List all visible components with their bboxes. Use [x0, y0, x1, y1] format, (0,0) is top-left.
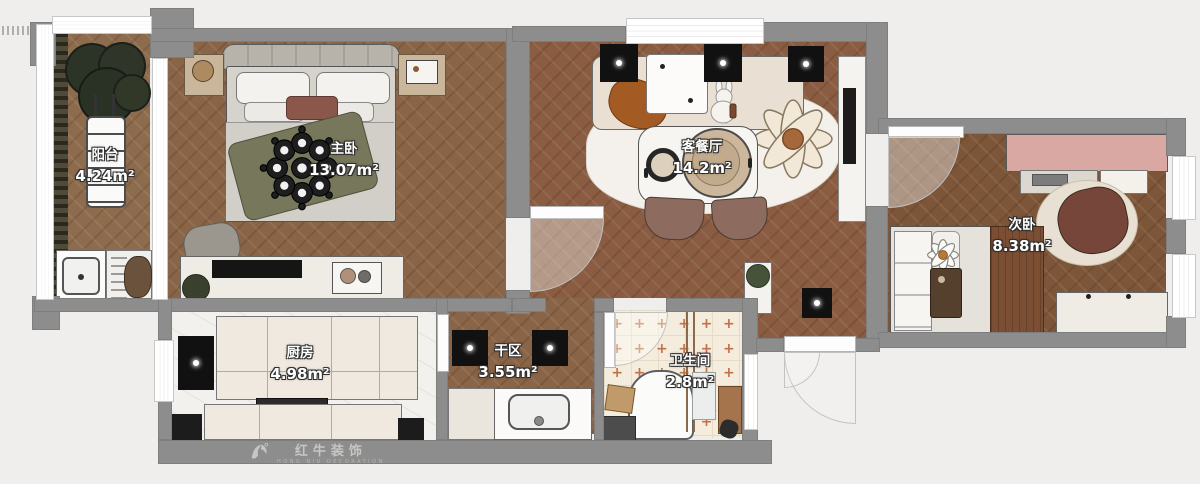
kitchen-window	[154, 340, 174, 402]
sink-faucet	[78, 274, 84, 280]
balcony-top-window	[52, 16, 152, 34]
wall-wing-bottom	[878, 332, 1186, 348]
ceiling-light	[704, 44, 742, 82]
entry-door	[784, 336, 856, 352]
second-bedroom-window	[1172, 156, 1196, 220]
wall-hall-bottom-left	[756, 338, 784, 352]
wall-top-living-right	[762, 22, 874, 42]
room-label-master-bedroom: 主卧 13.07m²	[296, 140, 392, 181]
room-area: 4.98m²	[242, 364, 358, 386]
cooktop	[178, 336, 214, 390]
wall-top-master	[150, 28, 512, 42]
room-label-dry-zone: 干区 3.55m²	[458, 342, 558, 383]
room-label-kitchen: 厨房 4.98m²	[242, 344, 358, 385]
balcony-sliding-door	[152, 58, 168, 300]
bath-cabinet	[600, 416, 636, 442]
wall-mid-stub	[512, 298, 546, 312]
room-area: 3.55m²	[458, 362, 558, 384]
entry-plant	[746, 264, 770, 288]
second-bedroom-window	[1172, 254, 1196, 318]
bathroom-window	[744, 354, 758, 430]
ceiling-light	[788, 46, 824, 82]
room-label-bathroom: 卫生间 2.8m²	[638, 352, 742, 393]
living-top-window	[626, 18, 764, 44]
decor-plate	[340, 268, 356, 284]
wall-hall-bottom-right	[854, 338, 880, 352]
wall-top-living-left	[512, 26, 626, 42]
nightstand-tray	[406, 60, 438, 84]
kitchen-sliding-door	[437, 314, 449, 372]
second-bedroom-cabinet	[1056, 292, 1168, 334]
flower-pillow	[926, 238, 960, 272]
floor-plan: ++++++++++++++++++++++++++++++	[0, 0, 1200, 484]
wall-bath-top-left	[594, 298, 614, 312]
decor-plate	[358, 270, 371, 283]
wall-kitchen-left-b	[158, 400, 172, 440]
side-table-item	[660, 64, 665, 69]
room-name: 干区	[458, 342, 558, 362]
room-name: 厨房	[242, 344, 358, 364]
room-name: 主卧	[296, 140, 392, 160]
room-area: 4.24m²	[60, 166, 150, 188]
kitchen-corner-unit	[398, 418, 424, 440]
wall-kitchen-left-a	[158, 298, 172, 340]
kitchen-base-cabinets	[204, 404, 402, 440]
site-annotation-scribble	[2, 26, 30, 35]
dry-zone-cabinet	[448, 388, 496, 440]
wall-living-wing-lower	[866, 206, 888, 346]
tv-screen	[212, 260, 302, 278]
room-area: 8.38m²	[972, 236, 1072, 258]
sink-faucet	[534, 416, 544, 426]
sofa-side-table	[646, 54, 708, 114]
bath-stool	[604, 384, 635, 414]
wall-master-living-upper	[506, 28, 530, 218]
brand-watermark: 红牛装饰 HONG NIU DECORATION	[248, 438, 385, 466]
balcony-rail-window	[36, 24, 54, 300]
room-name: 客餐厅	[652, 138, 752, 158]
room-area: 2.8m²	[638, 372, 742, 394]
desk	[1006, 134, 1168, 172]
cabinet-handle	[1126, 294, 1131, 299]
table-lamp	[192, 60, 214, 82]
balcony-plant-pot	[124, 256, 152, 298]
room-label-second-bedroom: 次卧 8.38m²	[972, 216, 1072, 257]
tray-item	[413, 66, 419, 72]
wall-wing-right-a	[1166, 118, 1186, 156]
ceiling-light	[600, 44, 638, 82]
room-label-balcony: 阳台 4.24m²	[60, 146, 150, 187]
tv-screen-living	[843, 88, 856, 164]
side-table-item	[688, 98, 693, 103]
daisy-flower-rug	[750, 96, 836, 182]
room-area: 13.07m²	[296, 160, 392, 182]
kitchen-corner-unit	[168, 414, 202, 440]
cutlery-mark	[644, 168, 648, 178]
bed-tray-table	[930, 268, 962, 318]
brand-name: 红牛装饰	[295, 440, 367, 459]
wall-dry-bath	[594, 312, 604, 440]
wall-wing-right-c	[1166, 316, 1186, 348]
wall-wing-right-b	[1166, 218, 1186, 254]
room-name: 次卧	[972, 216, 1072, 236]
cabinet-handle	[1086, 294, 1091, 299]
room-name: 阳台	[60, 146, 150, 166]
bunny-plush-toy	[706, 80, 740, 124]
brand-tagline: HONG NIU DECORATION	[277, 459, 385, 465]
room-name: 卫生间	[638, 352, 742, 372]
room-label-living-dining: 客餐厅 14.2m²	[652, 138, 752, 179]
bull-logo-icon	[248, 441, 270, 463]
tray-item	[938, 276, 945, 283]
room-area: 14.2m²	[652, 158, 752, 180]
ceiling-light	[802, 288, 832, 318]
